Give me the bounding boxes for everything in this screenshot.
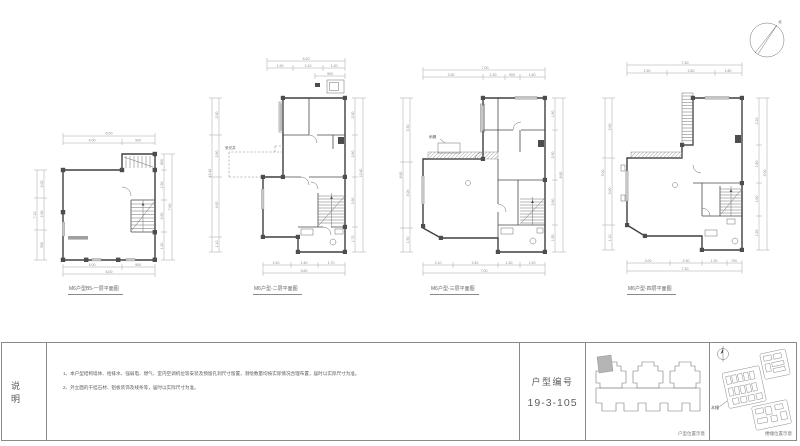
svg-text:2.50: 2.50 xyxy=(351,112,355,119)
svg-text:4.00: 4.00 xyxy=(406,190,410,197)
svg-text:800: 800 xyxy=(160,159,164,165)
note-line: 2、外立面的干挂石材、铝板装饰及线条等，届时以实际尺寸为准。 xyxy=(63,385,199,391)
notes-panel: 1、本户型结构墙体、给排水、强弱电、燃气、室内空调机位等安装及预留孔洞尺寸留置，… xyxy=(46,343,519,440)
svg-text:2.80: 2.80 xyxy=(215,151,219,158)
unit-number-label: 户型编号 xyxy=(532,375,574,388)
unit-location-caption: 户型位置示意 xyxy=(678,431,705,437)
svg-text:7.60: 7.60 xyxy=(168,204,172,211)
svg-text:900: 900 xyxy=(327,72,333,76)
svg-text:3.30: 3.30 xyxy=(448,73,455,77)
svg-text:1.70: 1.70 xyxy=(351,236,355,243)
columns xyxy=(261,96,347,254)
site-location-panel: 本幢 楼幢位置示意 xyxy=(709,343,796,440)
unit-location-panel: 户型位置示意 xyxy=(585,343,709,440)
stairs-icon xyxy=(720,186,742,216)
svg-text:1.30: 1.30 xyxy=(711,259,718,263)
svg-text:8.80: 8.80 xyxy=(559,172,563,179)
stairs-icon xyxy=(318,193,345,227)
svg-text:3.30: 3.30 xyxy=(406,125,410,132)
svg-text:7.00: 7.00 xyxy=(481,269,488,273)
svg-text:1.70: 1.70 xyxy=(328,261,335,265)
notes-heading: 说明 xyxy=(2,343,46,440)
building-footprints xyxy=(720,349,796,435)
svg-text:2.00: 2.00 xyxy=(40,181,44,188)
drawing-sheet: 北 6.00 4.00 900 2.00 2.30 900 7.10 800 1… xyxy=(0,0,800,446)
walls xyxy=(423,98,545,252)
svg-text:1.30: 1.30 xyxy=(490,73,497,77)
svg-text:700: 700 xyxy=(731,259,737,263)
highlighted-unit xyxy=(597,355,613,373)
walls xyxy=(627,98,742,250)
plan-2-title: M6户型-二层平面图 xyxy=(253,285,302,295)
svg-text:2.30: 2.30 xyxy=(40,211,44,218)
svg-text:2.30: 2.30 xyxy=(683,259,690,263)
columns xyxy=(421,96,547,254)
svg-text:2.60: 2.60 xyxy=(688,69,695,73)
courtyard-dashed-outline: 采光井 xyxy=(225,145,283,177)
svg-text:900: 900 xyxy=(135,263,141,267)
svg-text:1.20: 1.20 xyxy=(529,261,536,265)
svg-text:2.10: 2.10 xyxy=(435,261,442,265)
svg-text:2.80: 2.80 xyxy=(351,151,355,158)
site-north-icon xyxy=(718,346,729,362)
svg-text:9.00: 9.00 xyxy=(601,170,605,177)
north-label: 北 xyxy=(778,19,782,24)
title-block: 说明 1、本户型结构墙体、给排水、强弱电、燃气、室内空调机位等安装及预留孔洞尺寸… xyxy=(1,342,797,441)
svg-text:1.20: 1.20 xyxy=(160,243,164,250)
svg-text:4.00: 4.00 xyxy=(215,202,219,209)
svg-text:3.30: 3.30 xyxy=(351,198,355,205)
svg-text:1.80: 1.80 xyxy=(755,161,759,168)
svg-text:3.00: 3.00 xyxy=(608,188,612,195)
canopy-label: 雨棚 xyxy=(429,134,437,139)
svg-text:4.00: 4.00 xyxy=(89,263,96,267)
plan-3-title: M6户型-三层平面图 xyxy=(430,285,479,295)
svg-text:5.20: 5.20 xyxy=(303,57,310,61)
svg-text:6.00: 6.00 xyxy=(106,132,113,136)
unit-number-value: 19-3-105 xyxy=(528,397,578,409)
svg-text:2.20: 2.20 xyxy=(755,118,759,125)
plan-4-title: M6户型-四层平面图 xyxy=(627,285,676,295)
svg-text:1.50: 1.50 xyxy=(160,182,164,189)
svg-text:2.60: 2.60 xyxy=(551,199,555,206)
columns xyxy=(625,96,744,252)
windows xyxy=(261,102,283,209)
walls xyxy=(63,154,155,260)
svg-text:6.00: 6.00 xyxy=(106,270,113,274)
svg-text:1.10: 1.10 xyxy=(215,241,219,248)
svg-text:2.90: 2.90 xyxy=(551,152,555,159)
svg-text:7.00: 7.00 xyxy=(482,66,489,70)
svg-text:2.60: 2.60 xyxy=(160,213,164,220)
svg-text:900: 900 xyxy=(135,139,141,143)
canopy: 雨棚 xyxy=(428,134,498,159)
svg-text:10.40: 10.40 xyxy=(208,169,212,178)
svg-text:5.60: 5.60 xyxy=(301,269,308,273)
floor-plan-3: 7.00 3.30 1.30 900 1.60 3.30 4.00 1.50 8… xyxy=(393,58,577,290)
appliance-box xyxy=(315,80,344,93)
svg-text:1.60: 1.60 xyxy=(529,73,536,77)
floor-plan-2: 5.20 1.90 2.10 1.20 900 2.50 2.80 4.00 1… xyxy=(205,53,373,291)
svg-text:1.40: 1.40 xyxy=(301,261,308,265)
this-building-tag: 本幢 xyxy=(711,404,719,410)
svg-text:1.80: 1.80 xyxy=(551,111,555,118)
windows xyxy=(621,96,729,201)
svg-text:900: 900 xyxy=(509,73,515,77)
svg-text:1.80: 1.80 xyxy=(725,69,732,73)
svg-text:4.00: 4.00 xyxy=(89,139,96,143)
svg-text:1.50: 1.50 xyxy=(406,237,410,244)
site-location-diagram: 本幢 xyxy=(710,343,796,440)
plan-1-title: M6户型B5-一层平面图 xyxy=(68,285,123,295)
svg-text:2.40: 2.40 xyxy=(472,261,479,265)
floor-plan-1: 6.00 4.00 900 2.00 2.30 900 7.10 800 1.5… xyxy=(26,126,204,286)
unit-number-panel: 户型编号 19-3-105 xyxy=(519,343,585,440)
dimension-chains: 5.20 1.90 2.10 1.20 900 2.50 2.80 4.00 1… xyxy=(208,57,366,276)
svg-text:2.00: 2.00 xyxy=(645,259,652,263)
svg-text:1.55: 1.55 xyxy=(551,235,555,242)
svg-text:900: 900 xyxy=(40,242,44,248)
svg-text:1.20: 1.20 xyxy=(331,64,338,68)
note-line: 1、本户型结构墙体、给排水、强弱电、燃气、室内空调机位等安装及预留孔洞尺寸留置，… xyxy=(63,371,360,377)
svg-text:2.10: 2.10 xyxy=(305,64,312,68)
stairs-icon xyxy=(520,197,545,225)
svg-text:1.60: 1.60 xyxy=(755,196,759,203)
fixtures xyxy=(301,137,344,245)
svg-text:1.30: 1.30 xyxy=(506,261,513,265)
svg-text:1.10: 1.10 xyxy=(608,235,612,242)
site-location-caption: 楼幢位置示意 xyxy=(765,431,792,437)
unit-location-diagram xyxy=(586,343,710,440)
svg-text:2.60: 2.60 xyxy=(608,124,612,131)
columns xyxy=(61,152,157,262)
fixtures xyxy=(673,135,742,244)
svg-text:9.00: 9.00 xyxy=(763,170,767,177)
roof-trellis xyxy=(631,93,693,158)
svg-text:1.50: 1.50 xyxy=(644,69,651,73)
svg-text:7.10: 7.10 xyxy=(33,212,37,219)
courtyard-label: 采光井 xyxy=(225,145,236,150)
floor-plan-4: 7.30 1.50 2.60 1.80 2.60 3.00 1.10 9.00 … xyxy=(595,53,791,291)
svg-text:1.55: 1.55 xyxy=(755,230,759,237)
svg-text:1.90: 1.90 xyxy=(277,64,284,68)
windows xyxy=(62,222,135,261)
stairs-icon xyxy=(131,200,155,232)
svg-text:2.40: 2.40 xyxy=(273,261,280,265)
svg-text:7.30: 7.30 xyxy=(682,267,689,271)
svg-text:2.50: 2.50 xyxy=(215,112,219,119)
svg-text:7.30: 7.30 xyxy=(682,61,689,65)
svg-text:8.80: 8.80 xyxy=(399,172,403,179)
svg-text:10.40: 10.40 xyxy=(359,169,363,178)
